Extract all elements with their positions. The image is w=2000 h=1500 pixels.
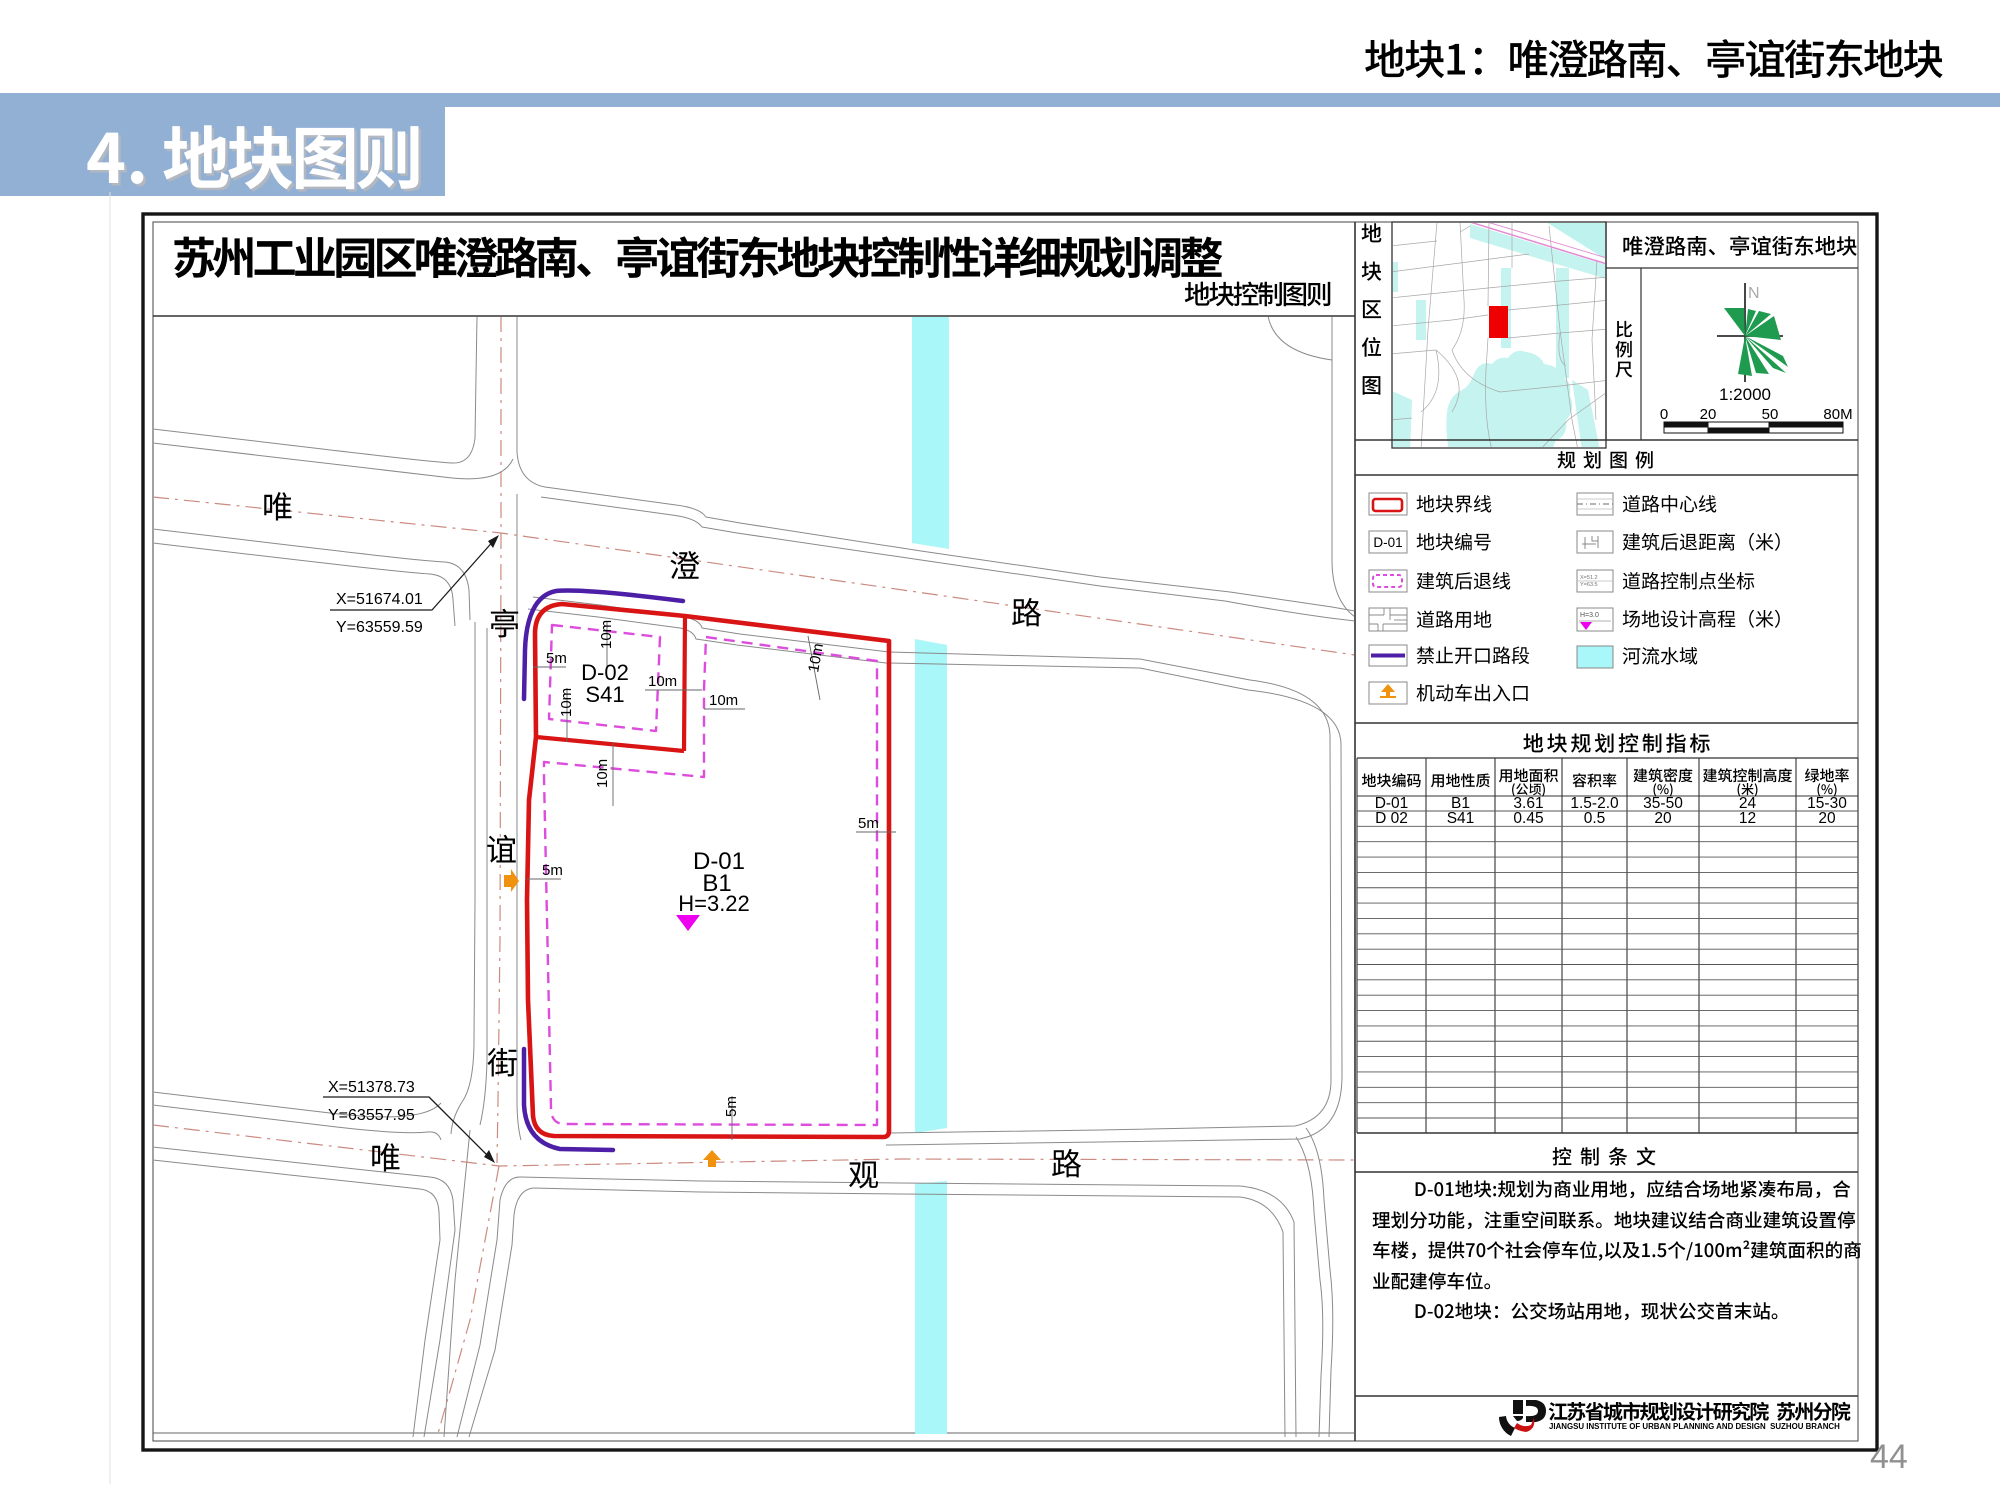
svg-text:5m: 5m — [723, 1096, 740, 1117]
svg-text:10m: 10m — [709, 692, 738, 709]
svg-text:Y=63559.59: Y=63559.59 — [336, 619, 423, 636]
svg-text:5m: 5m — [858, 815, 879, 832]
svg-text:44: 44 — [1870, 1438, 1908, 1476]
svg-text:S41: S41 — [1447, 810, 1475, 827]
svg-text:X=51.2: X=51.2 — [1580, 575, 1598, 581]
svg-text:Y=63.5: Y=63.5 — [1580, 582, 1598, 588]
svg-text:10m: 10m — [598, 620, 615, 649]
svg-text:5m: 5m — [542, 862, 563, 879]
svg-text:10m: 10m — [558, 688, 575, 717]
svg-text:D-01: D-01 — [1373, 535, 1402, 550]
svg-text:1:2000: 1:2000 — [1719, 385, 1771, 404]
svg-text:0.45: 0.45 — [1513, 810, 1543, 827]
svg-text:5m: 5m — [546, 650, 567, 667]
svg-text:80M: 80M — [1823, 406, 1852, 423]
svg-text:50: 50 — [1762, 406, 1779, 423]
svg-text:20: 20 — [1654, 810, 1672, 827]
svg-text:X=51674.01: X=51674.01 — [336, 591, 423, 608]
svg-text:D 02: D 02 — [1375, 810, 1408, 827]
svg-text:N: N — [1748, 285, 1760, 302]
svg-text:JIANGSU INSTITUTE OF URBAN PLA: JIANGSU INSTITUTE OF URBAN PLANNING AND … — [1549, 1422, 1840, 1431]
svg-text:H=3.0: H=3.0 — [1580, 612, 1599, 619]
svg-text:0.5: 0.5 — [1584, 810, 1606, 827]
svg-text:20: 20 — [1700, 406, 1717, 423]
svg-text:20: 20 — [1818, 810, 1836, 827]
svg-text:H=3.22: H=3.22 — [678, 891, 750, 916]
svg-text:Y=63557.95: Y=63557.95 — [328, 1107, 415, 1124]
svg-text:10m: 10m — [648, 673, 677, 690]
svg-text:10m: 10m — [594, 759, 611, 788]
svg-text:0: 0 — [1660, 406, 1668, 423]
svg-text:X=51378.73: X=51378.73 — [328, 1079, 415, 1096]
svg-text:12: 12 — [1739, 810, 1756, 827]
svg-text:S41: S41 — [585, 682, 624, 707]
